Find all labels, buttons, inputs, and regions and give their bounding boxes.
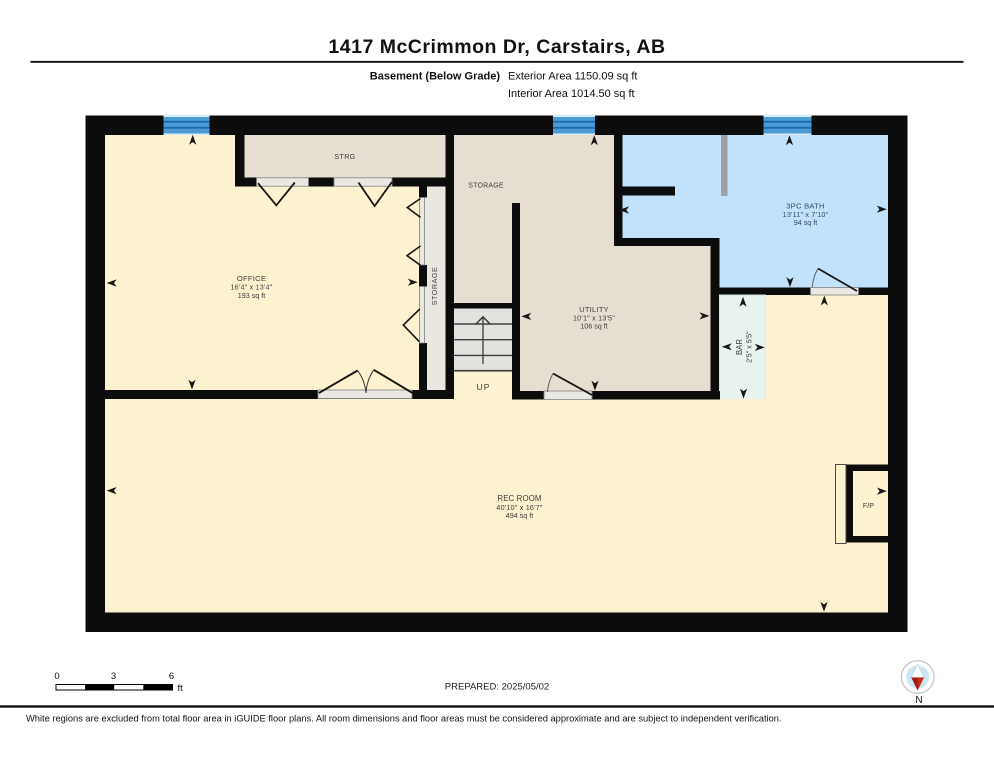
- svg-text:Interior Area 1014.50 sq ft: Interior Area 1014.50 sq ft: [508, 88, 635, 100]
- svg-text:UP: UP: [476, 382, 490, 392]
- svg-text:BAR: BAR: [735, 339, 744, 355]
- svg-text:F/P: F/P: [863, 501, 874, 510]
- svg-text:STORAGE: STORAGE: [468, 182, 504, 189]
- svg-text:106 sq ft: 106 sq ft: [580, 322, 608, 331]
- svg-text:ft: ft: [178, 683, 184, 694]
- svg-text:1417 McCrimmon Dr, Carstairs,: 1417 McCrimmon Dr, Carstairs, AB: [328, 36, 665, 58]
- svg-text:193 sq ft: 193 sq ft: [238, 291, 266, 300]
- svg-text:494 sq ft: 494 sq ft: [506, 511, 534, 520]
- svg-text:6: 6: [169, 671, 174, 682]
- svg-text:White regions are excluded fro: White regions are excluded from total fl…: [26, 714, 782, 724]
- svg-text:Basement (Below Grade): Basement (Below Grade): [370, 70, 501, 82]
- svg-text:N: N: [915, 695, 922, 706]
- svg-text:STORAGE: STORAGE: [430, 267, 439, 306]
- svg-text:2'5" x 5'5": 2'5" x 5'5": [744, 331, 753, 363]
- svg-text:0: 0: [54, 671, 59, 682]
- svg-text:3: 3: [111, 671, 116, 682]
- svg-text:94 sq ft: 94 sq ft: [794, 218, 818, 227]
- svg-text:PREPARED: 2025/05/02: PREPARED: 2025/05/02: [445, 681, 549, 692]
- svg-text:STRG: STRG: [334, 152, 355, 161]
- svg-text:Exterior Area 1150.09 sq ft: Exterior Area 1150.09 sq ft: [508, 70, 637, 82]
